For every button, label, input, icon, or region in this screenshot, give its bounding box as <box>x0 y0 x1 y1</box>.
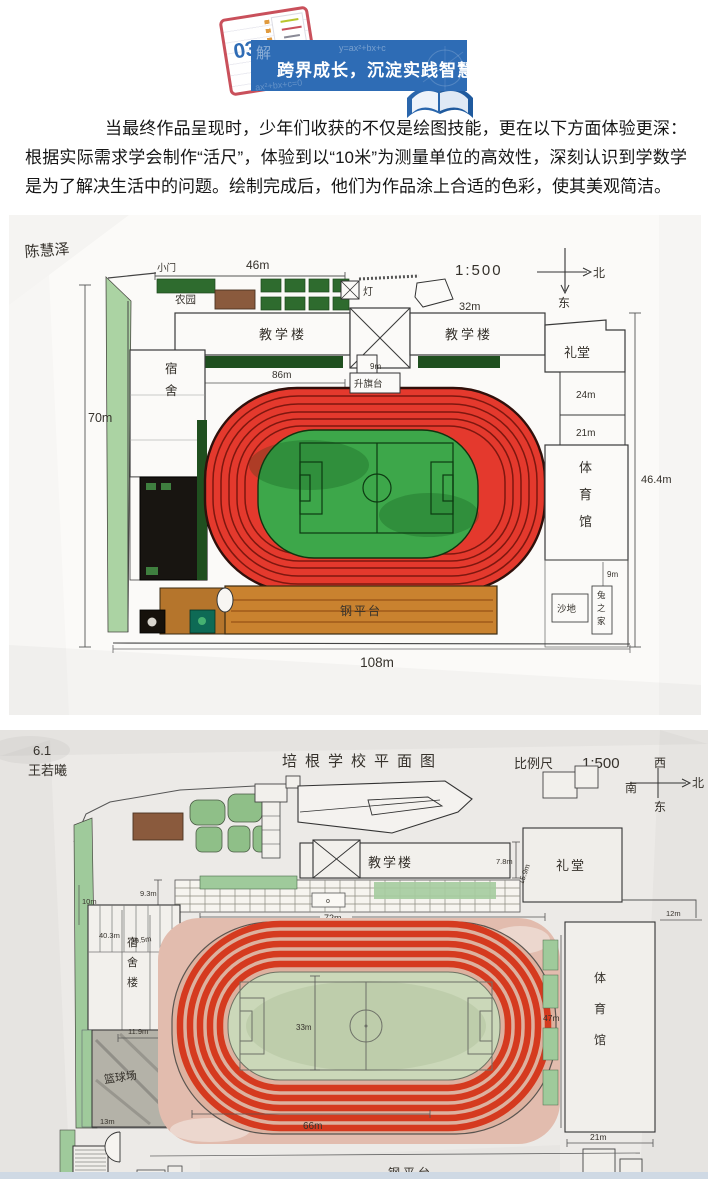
running-track-2 <box>158 918 560 1144</box>
rabbit-home-label: 兔之家 <box>597 590 606 626</box>
measure-108m: 108m <box>360 655 394 670</box>
section-title-banner: 解 y=ax²+bx+c 跨界成长，沉淀实践智慧 ax²+bx+c=0 <box>251 40 467 91</box>
measure-66m: 66m <box>303 1121 322 1132</box>
flag-stage-label: 升旗台 <box>354 378 383 390</box>
measure-46-4m: 46.4m <box>641 474 672 486</box>
auditorium-label-2: 礼堂 <box>556 858 586 873</box>
teach-label-2: 教学楼 <box>368 855 413 870</box>
measure-9m-flag: 9m <box>370 362 381 371</box>
intro-paragraph: 当最终作品呈现时，少年们收获的不仅是绘图技能，更在以下方面体验更深：根据实际需求… <box>25 114 687 201</box>
measure-33m: 33m <box>296 1023 312 1032</box>
compass-east-label: 东 <box>558 296 570 310</box>
measure-40-3m: 40.3m <box>99 931 120 940</box>
drawing1-author: 陈慧泽 <box>24 240 70 261</box>
compass-east-label-2: 东 <box>654 800 666 814</box>
grid-walkway <box>175 876 520 912</box>
drawing2-title: 培根学校平面图 <box>282 753 443 770</box>
auditorium-label: 礼堂 <box>564 345 590 360</box>
measure-13m: 13m <box>100 1117 115 1126</box>
compass-north-label-2: 北 <box>692 776 704 790</box>
drawing2-author: 王若曦 <box>28 763 67 778</box>
banner-formula-top: y=ax²+bx+c <box>339 43 386 53</box>
measure-24m: 24m <box>576 390 595 401</box>
measure-11-9m: 11.9m <box>128 1027 148 1036</box>
farm-label: 农园 <box>175 293 196 306</box>
scale-text: 1:500 <box>455 262 503 279</box>
drawing2-class: 6.1 <box>33 743 51 758</box>
student-drawing-2[interactable]: 6.1 王若曦 培根学校平面图 比例尺 1:500 西 北 南 东 <box>0 730 708 1179</box>
lamp-label: 灯 <box>363 286 373 298</box>
teach-left-label: 教学楼 <box>259 327 307 342</box>
compass-west-label: 西 <box>654 756 666 770</box>
gate-label: 小门 <box>157 262 176 274</box>
platform-label: 钢平台 <box>340 603 382 618</box>
banner-formula-bottom: ax²+bx+c=0 <box>255 78 303 91</box>
compass-north-label: 北 <box>593 266 605 280</box>
scale-label: 比例尺 <box>514 756 553 771</box>
measure-47m: 47m <box>543 1013 560 1023</box>
gym-label-2: 体育馆 <box>594 971 606 1047</box>
measure-12m: 12m <box>666 909 681 918</box>
geometry-doodle-icon <box>409 42 465 91</box>
compass-south-label: 南 <box>625 780 637 795</box>
student-drawing-1[interactable]: 陈慧泽 小门 46m 农园 <box>9 215 701 720</box>
banner-decor-glyph: 解 <box>256 42 271 63</box>
measure-9-3m: 9.3m <box>140 889 157 898</box>
measure-86m: 86m <box>272 370 291 381</box>
drawing2-canvas: 6.1 王若曦 培根学校平面图 比例尺 1:500 西 北 南 东 <box>0 730 708 1179</box>
measure-7-8m: 7.8m <box>496 857 513 866</box>
teach-right-label: 教学楼 <box>445 327 493 342</box>
drawing1-canvas: 陈慧泽 小门 46m 农园 <box>9 215 701 715</box>
measure-21m-2: 21m <box>590 1132 607 1142</box>
measure-70m: 70m <box>88 411 112 425</box>
running-track <box>205 388 545 592</box>
article-page: 03 解 y=ax²+bx+c 跨界成长，沉淀实践智慧 ax²+bx+c=0 <box>0 0 708 1179</box>
measure-32m: 32m <box>459 301 480 313</box>
sand-label: 沙地 <box>557 603 577 615</box>
bottom-edge-bar <box>0 1172 708 1179</box>
measure-9m-right: 9m <box>607 570 618 579</box>
measure-46m: 46m <box>246 258 269 272</box>
gym-label: 体育馆 <box>579 460 592 529</box>
bench-mark: o <box>326 898 330 905</box>
measure-21m: 21m <box>576 428 595 439</box>
